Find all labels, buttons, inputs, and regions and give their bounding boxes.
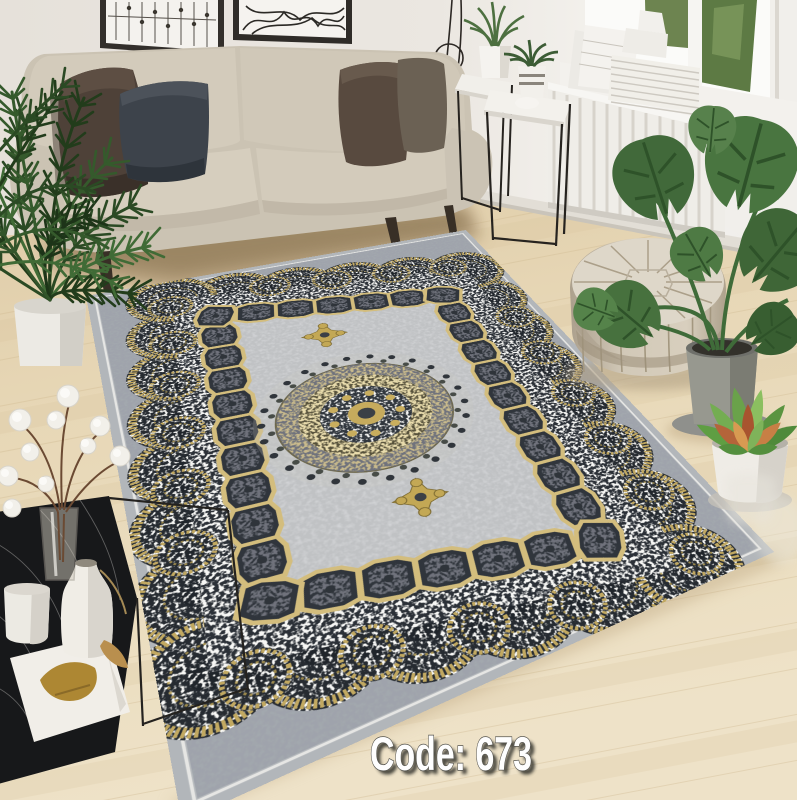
svg-text:Code: 673: Code: 673 <box>370 727 532 780</box>
